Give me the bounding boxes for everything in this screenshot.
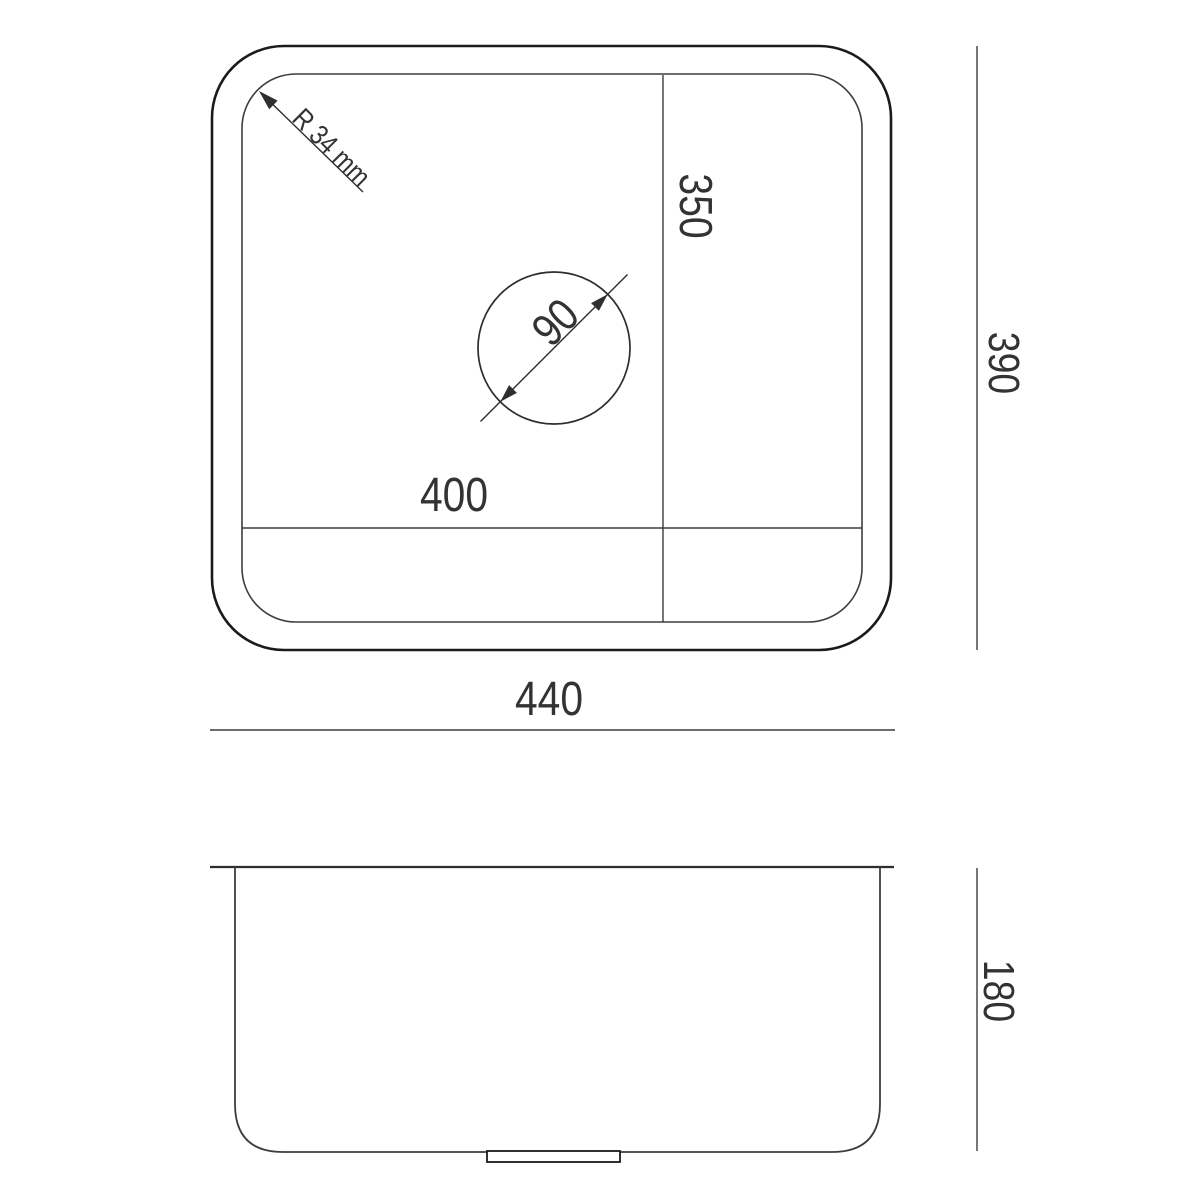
depth-label: 180 [974,960,1024,1022]
overall-width-label: 440 [515,673,583,726]
basin-height-label: 350 [669,173,721,238]
drain-outlet [487,1151,620,1162]
sink-dimension-diagram: R 34 mm 350 90 400 390 440 180 [0,0,1200,1200]
overall-height-dimension: 390 [977,46,1029,650]
side-body-outline [235,867,880,1152]
drawing-canvas: R 34 mm 350 90 400 390 440 180 [0,0,1200,1200]
sink-side-view [210,867,894,1162]
overall-width-dimension: 440 [210,673,895,730]
sink-top-view: R 34 mm 350 90 400 [212,46,891,650]
drain-diameter-label: 90 [522,289,589,356]
corner-radius-label: R 34 mm [286,102,377,193]
basin-width-label: 400 [420,469,488,522]
depth-dimension: 180 [974,868,1024,1151]
overall-height-label: 390 [979,332,1029,394]
